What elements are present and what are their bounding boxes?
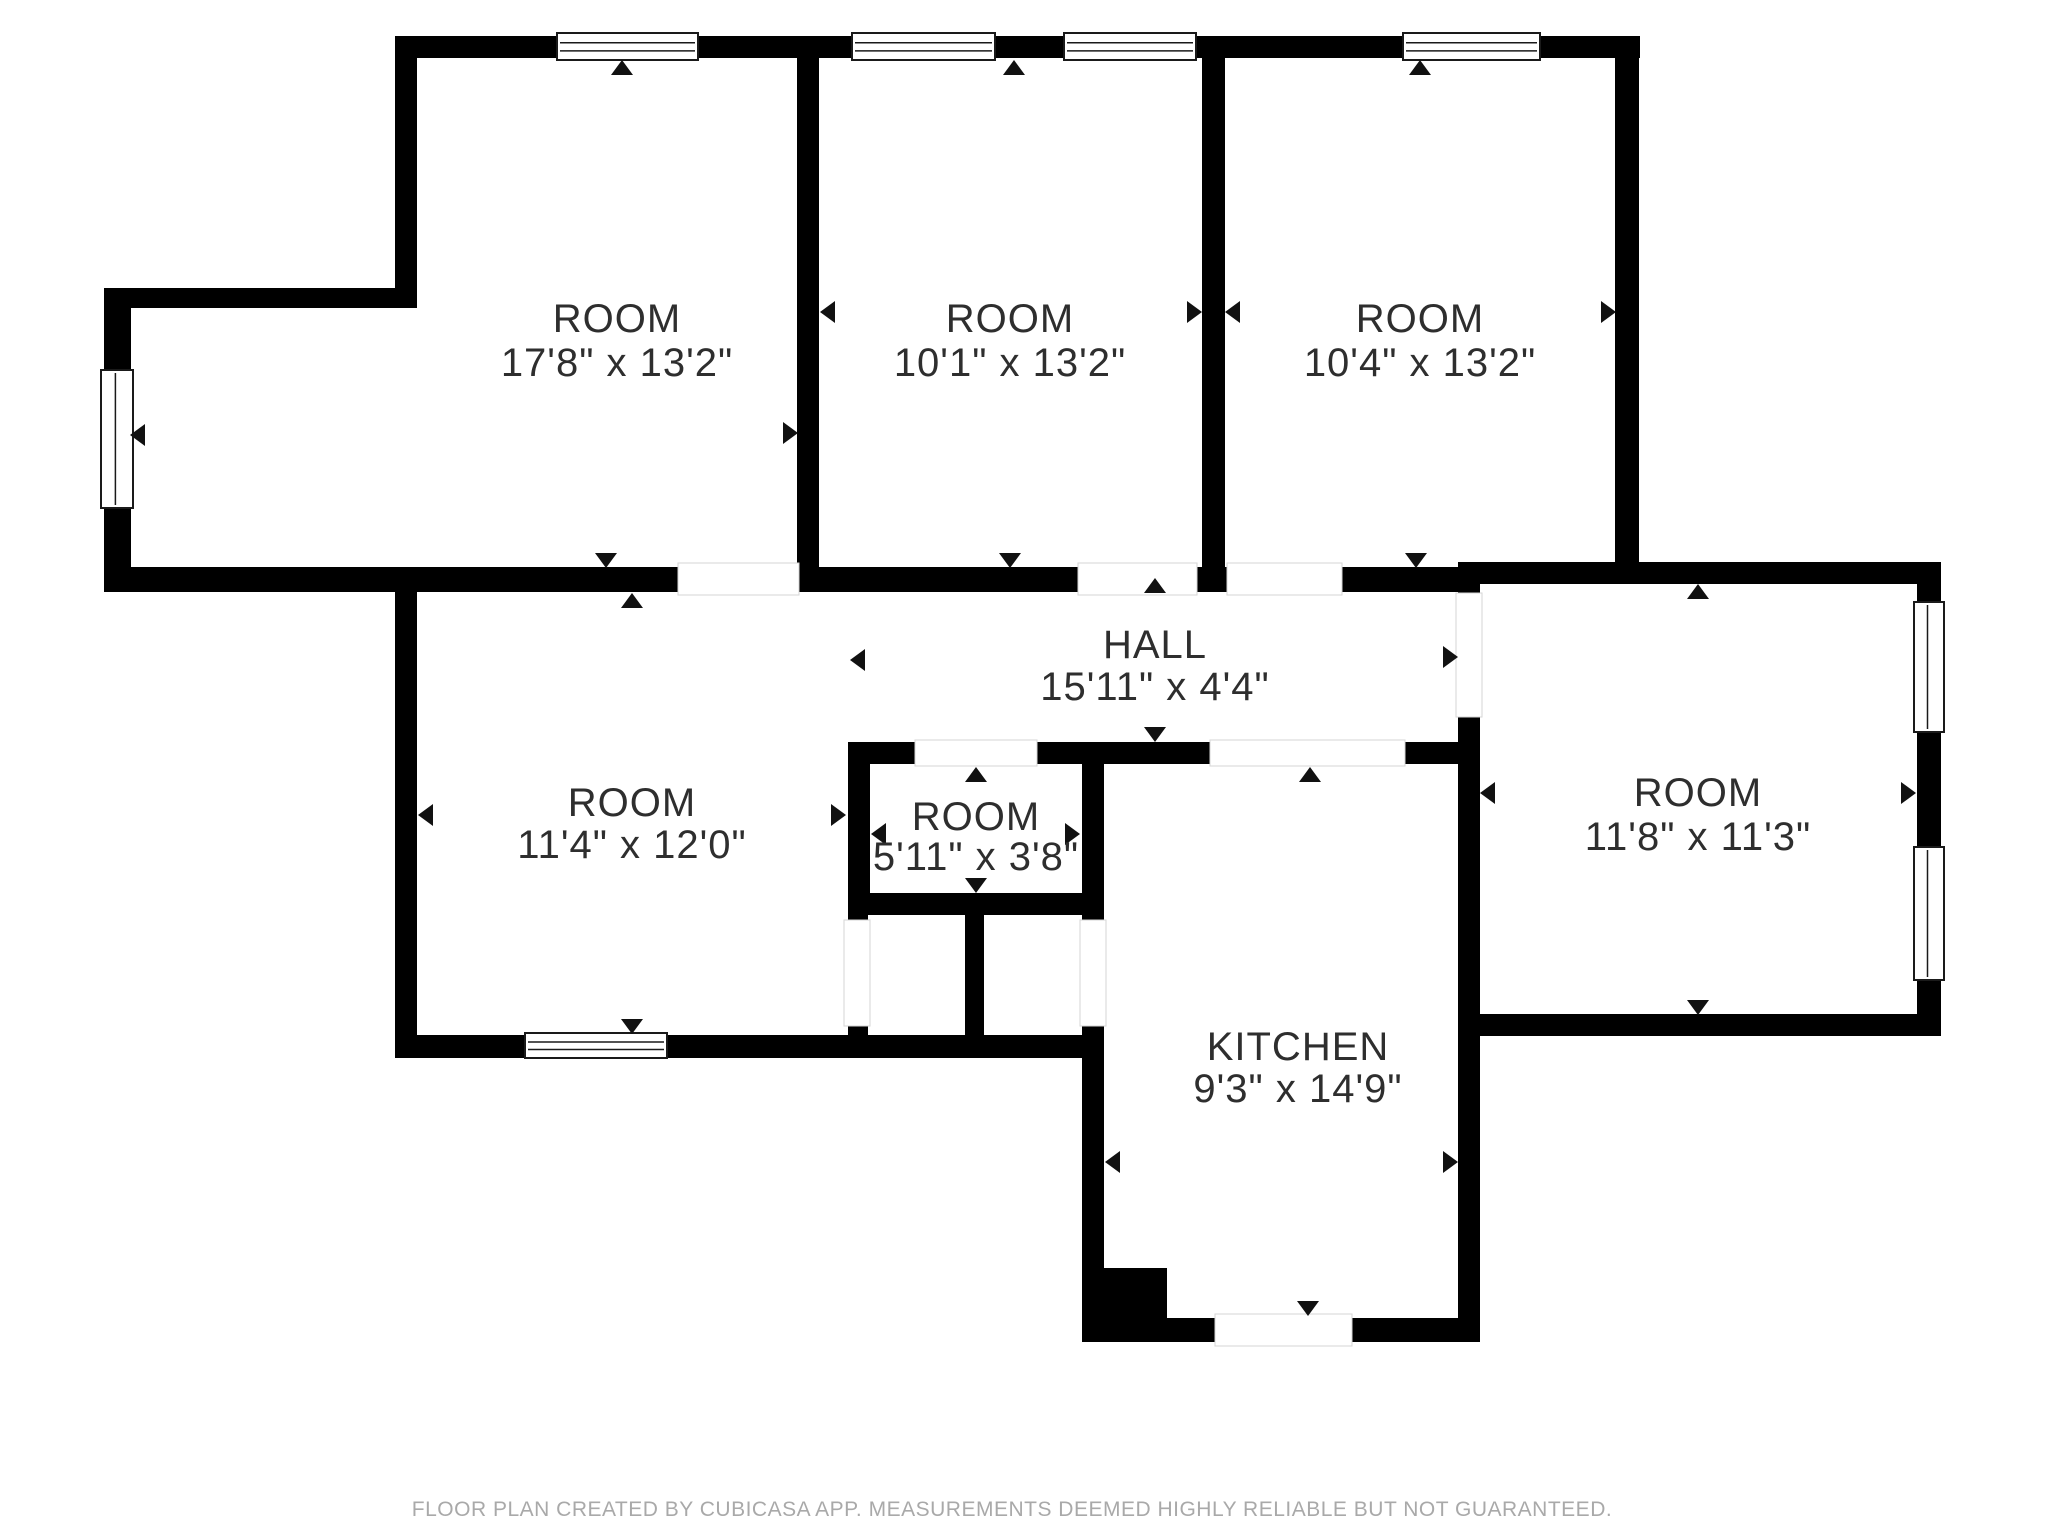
room-label-top-middle: ROOM 10'1" x 13'2" [894, 297, 1126, 385]
room-name-label: HALL [1103, 623, 1207, 667]
window [1914, 602, 1944, 732]
window [101, 370, 133, 508]
room-label-top-left: ROOM 17'8" x 13'2" [501, 297, 733, 385]
room-name-label: ROOM [1356, 297, 1484, 341]
room-label-hall: HALL 15'11" x 4'4" [1040, 623, 1269, 709]
room-name-label: ROOM [946, 297, 1074, 341]
wall [104, 288, 417, 308]
wall [1460, 562, 1940, 584]
window [1064, 33, 1196, 60]
window [525, 1033, 667, 1058]
window [852, 33, 995, 60]
dimension-arrow-up [621, 593, 643, 608]
room-dims-label: 17'8" x 13'2" [501, 341, 733, 385]
wall [395, 567, 417, 1058]
window-frame [557, 33, 698, 60]
wall [1615, 58, 1639, 584]
window-frame [1064, 33, 1196, 60]
window-frame [1914, 847, 1944, 980]
room-dims-label: 10'1" x 13'2" [894, 341, 1126, 385]
dimension-arrow-right [1901, 782, 1916, 804]
window-frame [852, 33, 995, 60]
room-dims-label: 11'8" x 11'3" [1585, 815, 1811, 859]
door-opening [1078, 563, 1197, 595]
door-opening [1080, 920, 1106, 1026]
window-frame [1914, 602, 1944, 732]
window [1403, 33, 1540, 60]
dimension-arrow-left [820, 301, 835, 323]
dimension-arrow-down [621, 1019, 643, 1034]
room-name-label: ROOM [553, 297, 681, 341]
walls-layer [104, 36, 1941, 1342]
floor-plan-canvas: ROOM 17'8" x 13'2" ROOM 10'1" x 13'2" RO… [0, 0, 2048, 1536]
dimension-arrow-up [1409, 60, 1431, 75]
wall [848, 893, 1104, 915]
window-frame [1403, 33, 1540, 60]
dimension-arrow-up [1299, 767, 1321, 782]
room-name-label: KITCHEN [1207, 1025, 1390, 1069]
room-label-right: ROOM 11'8" x 11'3" [1585, 771, 1811, 859]
room-dims-label: 5'11" x 3'8" [873, 835, 1079, 879]
dimension-arrow-down [999, 553, 1021, 568]
footer-disclaimer: FLOOR PLAN CREATED BY CUBICASA APP. MEAS… [412, 1498, 1612, 1521]
door-opening [678, 563, 799, 595]
dimension-arrow-down [1687, 1000, 1709, 1015]
dimension-arrow-right [831, 804, 846, 826]
window [557, 33, 698, 60]
dimension-arrow-left [418, 804, 433, 826]
room-name-label: ROOM [1634, 771, 1762, 815]
door-opening [1210, 740, 1405, 766]
window [1914, 847, 1944, 980]
room-label-small: ROOM 5'11" x 3'8" [873, 795, 1079, 879]
wall [797, 58, 819, 567]
dimension-arrow-up [965, 767, 987, 782]
wall [1458, 1014, 1941, 1036]
dimension-arrow-right [783, 422, 798, 444]
wall [965, 915, 984, 1040]
room-dims-label: 10'4" x 13'2" [1304, 341, 1536, 385]
dimension-arrow-up [611, 60, 633, 75]
door-opening [915, 740, 1037, 766]
door-opening [1456, 593, 1482, 717]
room-label-kitchen: KITCHEN 9'3" x 14'9" [1193, 1025, 1402, 1111]
wall [395, 36, 417, 308]
dimension-arrow-right [1443, 1151, 1458, 1173]
dimension-arrow-right [1187, 301, 1202, 323]
wall [1102, 1268, 1167, 1322]
wall [848, 742, 870, 915]
dimension-arrow-up [1003, 60, 1025, 75]
window-frame [525, 1033, 667, 1058]
room-dims-label: 9'3" x 14'9" [1193, 1067, 1402, 1111]
dimension-arrow-left [1105, 1151, 1120, 1173]
room-name-label: ROOM [568, 781, 696, 825]
room-name-label: ROOM [912, 795, 1040, 839]
door-opening [1227, 563, 1342, 595]
dimension-arrow-left [1480, 782, 1495, 804]
dimension-arrow-down [1405, 553, 1427, 568]
dimension-arrow-left [1225, 301, 1240, 323]
wall [395, 1035, 1104, 1058]
room-dims-label: 11'4" x 12'0" [517, 823, 746, 867]
door-opening [1215, 1314, 1352, 1346]
door-opening [844, 920, 870, 1026]
wall [1202, 58, 1225, 567]
floor-plan-page: ROOM 17'8" x 13'2" ROOM 10'1" x 13'2" RO… [0, 0, 2048, 1536]
dimension-arrow-down [595, 553, 617, 568]
room-label-top-right: ROOM 10'4" x 13'2" [1304, 297, 1536, 385]
dimension-arrow-left [850, 649, 865, 671]
dimension-arrow-down [965, 878, 987, 893]
window-frame [101, 370, 133, 508]
room-label-bottom-left: ROOM 11'4" x 12'0" [517, 781, 746, 867]
dimension-arrow-right [1601, 301, 1616, 323]
dimension-arrow-down [1144, 727, 1166, 742]
dimension-arrow-up [1687, 584, 1709, 599]
room-dims-label: 15'11" x 4'4" [1040, 665, 1269, 709]
